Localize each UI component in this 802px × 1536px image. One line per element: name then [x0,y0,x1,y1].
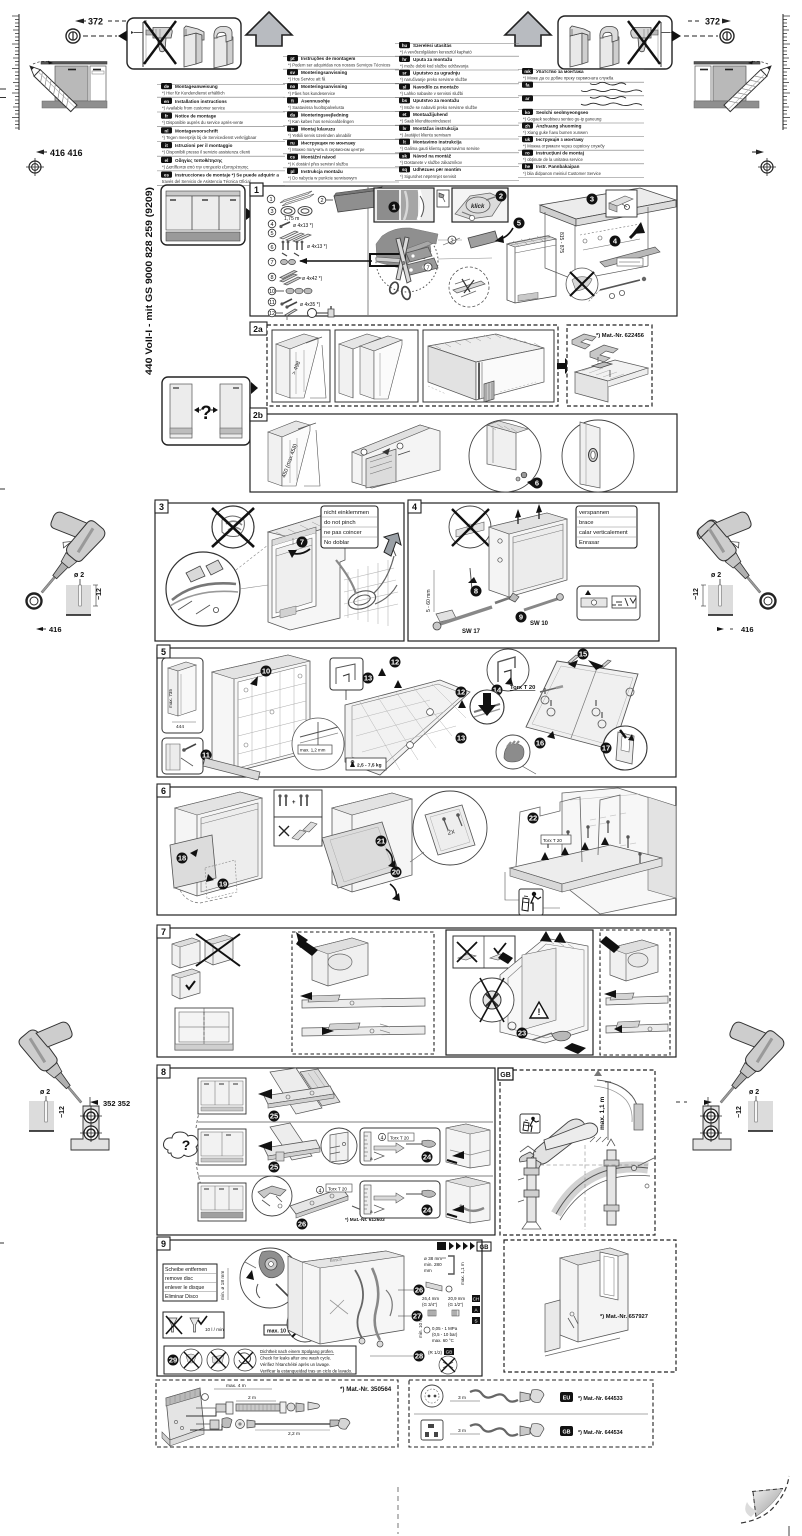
svg-text:Check for leaks after one wash: Check for leaks after one wash cycle. [260,1356,331,1361]
svg-text:Instr. Pannbakaipan: Instr. Pannbakaipan [536,164,580,169]
svg-text:5: 5 [517,219,521,228]
svg-text:Installation instructions: Installation instructions [175,99,227,104]
svg-text:2a: 2a [253,324,263,334]
svg-text:ru: ru [290,141,295,146]
svg-text:10: 10 [269,289,275,295]
svg-text:max. 735: max. 735 [168,689,173,708]
svg-text:ø 2: ø 2 [749,1089,759,1096]
svg-text:calar verticalement: calar verticalement [579,530,628,536]
svg-text:27: 27 [413,1312,421,1321]
svg-text:2: 2 [320,198,323,204]
svg-text:SW 10: SW 10 [530,621,549,627]
svg-text:Enrasar: Enrasar [579,540,599,546]
svg-text:?: ? [200,403,212,424]
svg-text:Інструкція з монтажу: Інструкція з монтажу [536,137,584,142]
svg-text:2,5 - 7,5 kg: 2,5 - 7,5 kg [357,763,382,769]
svg-text:es: es [164,173,169,178]
svg-text:6: 6 [270,245,273,251]
svg-text:Uputstvo za montažu: Uputstvo za montažu [413,98,459,103]
svg-text:Asennusohje: Asennusohje [301,98,330,103]
svg-text:brace: brace [579,520,594,526]
svg-text:26,4 mm: 26,4 mm [422,1296,439,1301]
svg-text:*) obținute de la unitatea ser: *) obținute de la unitatea service [523,157,583,162]
svg-text:24: 24 [423,1206,432,1215]
svg-text:*) Galima gauti klientų aptarn: *) Galima gauti klientų aptarnavimo serv… [400,146,480,151]
svg-text:SW 17: SW 17 [462,629,481,635]
svg-text:*) Kan købes hos serviceafdeli: *) Kan købes hos serviceafdelingen [288,119,355,124]
svg-text:−12: −12 [736,1106,743,1118]
svg-text:Montaj kılavuzu: Montaj kılavuzu [301,127,335,132]
svg-text:GB: GB [500,1072,511,1079]
svg-text:2b: 2b [253,410,263,420]
svg-text:18: 18 [178,854,186,863]
svg-text:+: + [292,800,296,806]
svg-text:2: 2 [499,192,503,201]
svg-text:Torx T 20: Torx T 20 [543,838,562,843]
svg-text:fr: fr [165,114,168,119]
svg-text:a: a [370,1156,373,1161]
svg-text:444: 444 [176,724,184,730]
svg-text:6: 6 [161,786,166,796]
svg-text:*) Yetkili servis üzerinden al: *) Yetkili servis üzerinden alınabilir [288,133,352,138]
svg-text:Οδηγίες τοποθέτησης: Οδηγίες τοποθέτησης [175,158,223,164]
svg-text:sr: sr [402,71,406,76]
svg-text:Montavimo instrukcija: Montavimo instrukcija [413,140,462,145]
svg-text:*) Можно получить в сервисном: *) Можно получить в сервисном центре [288,147,365,152]
svg-text:Torx T 20: Torx T 20 [510,685,535,691]
svg-text:!: ! [538,1007,541,1017]
svg-text:Návod na montáž: Návod na montáž [413,153,452,158]
svg-text:?: ? [182,1137,191,1153]
svg-text:*) Dostanete v službe zákazník: *) Dostanete v službe zákazníkov [400,160,463,165]
svg-text:no: no [290,84,296,89]
svg-text:ne pas coincer: ne pas coincer [324,530,362,536]
svg-text:GB: GB [446,1350,453,1355]
svg-text:*) Xiang guke fuwu bumen xunwe: *) Xiang guke fuwu bumen xunwen [523,130,588,135]
svg-text:(G 3/4"): (G 3/4") [422,1302,438,1307]
svg-text:28: 28 [415,1352,423,1361]
svg-text:3: 3 [270,209,273,215]
svg-text:hu: hu [402,43,408,48]
svg-text:372: 372 [705,17,720,27]
svg-text:10: 10 [262,667,270,676]
svg-text:GB: GB [562,1430,570,1436]
svg-text:*) Може да се добие преку серв: *) Може да се добие преку сервисната слу… [523,76,614,81]
svg-text:372: 372 [88,17,103,27]
svg-text:remove disc: remove disc [165,1276,193,1282]
svg-text:pt: pt [290,56,295,61]
svg-text:*) Podem ser adquiridas nos no: *) Podem ser adquiridas nos nossos Servi… [288,63,390,68]
svg-text:1: 1 [269,197,272,203]
svg-text:*) A vevőszolgálaton keresztül: *) A vevőszolgálaton keresztül kapható [400,50,472,55]
svg-text:max. 60 °C: max. 60 °C [432,1338,454,1343]
svg-text:do not pinch: do not pinch [324,520,356,526]
svg-text:2,2 m: 2,2 m [288,1431,300,1437]
svg-text:26: 26 [298,1220,306,1229]
svg-text:10 l / min: 10 l / min [205,1327,224,1332]
svg-text:Torx T 20: Torx T 20 [390,1136,409,1141]
svg-text:*) Mat.-Nr. 622456: *) Mat.-Nr. 622456 [596,333,645,339]
svg-text:*) Mat.-Nr. 657927: *) Mat.-Nr. 657927 [600,1314,648,1320]
svg-text:0,05 - 1 MPa: 0,05 - 1 MPa [432,1326,458,1331]
svg-text:4: 4 [412,502,417,512]
svg-text:he: he [525,164,531,169]
svg-text:mk: mk [524,69,531,74]
svg-text:20,9 mm: 20,9 mm [448,1296,465,1301]
svg-text:bs: bs [402,98,408,103]
svg-text:Udhëzues për montim: Udhëzues për montim [413,167,461,172]
svg-text:(G 1/2"): (G 1/2") [448,1302,464,1307]
svg-text:Szerelési utasítás: Szerelési utasítás [413,43,452,48]
svg-text:416 416: 416 416 [50,148,83,158]
svg-text:Notice de montage: Notice de montage [175,114,217,119]
svg-text:Monteringsanvisning: Monteringsanvisning [301,84,347,89]
svg-text:*) Do nabycia w punkcie serwis: *) Do nabycia w punkcie serwisowym [288,175,357,180]
svg-text:Инструкция по монтажу: Инструкция по монтажу [301,141,356,146]
svg-text:enlever le disque: enlever le disque [165,1285,204,1291]
svg-text:da: da [290,112,296,117]
svg-text:min. ø 18 mm: min. ø 18 mm [220,1271,226,1300]
svg-text:en: en [164,99,169,104]
svg-text:ø 4x35 *): ø 4x35 *) [300,302,321,308]
svg-text:6: 6 [535,479,539,488]
svg-text:sv: sv [290,70,295,75]
svg-text:Montaažijuhend: Montaažijuhend [413,112,448,117]
svg-text:*) Disponibili presso il servi: *) Disponibili presso il servizio assist… [162,150,250,155]
svg-text:ø 2: ø 2 [40,1089,50,1096]
svg-text:2 m: 2 m [248,1395,256,1401]
svg-text:max. 1,2 mm: max. 1,2 mm [300,748,326,753]
svg-text:21: 21 [377,837,385,846]
svg-text:24: 24 [423,1153,432,1162]
svg-text:7: 7 [270,260,273,266]
svg-text:*) Available from customer ser: *) Available from customer service [162,105,226,110]
svg-text:et: et [403,112,407,117]
svg-text:Istruzioni per il montaggio: Istruzioni per il montaggio [175,143,233,148]
svg-text:nicht einklemmen: nicht einklemmen [324,510,369,516]
svg-text:Montāžas instrukcija: Montāžas instrukcija [413,126,459,131]
svg-text:17: 17 [602,744,610,753]
svg-text:Uputstvo za ugradnju: Uputstvo za ugradnju [413,71,460,76]
svg-text:Monteringsvejledning: Monteringsvejledning [301,112,349,117]
svg-text:ø 4x13 *): ø 4x13 *) [293,223,314,229]
svg-text:*) Hier für Kundendienst erhäl: *) Hier für Kundendienst erhältlich [162,91,225,96]
svg-text:*) Можна отримати через сервіс: *) Можна отримати через сервісну службу [523,144,606,149]
svg-text:S: S [474,1319,477,1324]
svg-text:(0,5 - 10 bar): (0,5 - 10 bar) [432,1332,458,1337]
svg-text:*) Tegen meerprijs bij de Serv: *) Tegen meerprijs bij de Servicedienst … [162,135,257,140]
svg-text:Montageanweisung: Montageanweisung [175,84,218,89]
svg-text:Torx T 20: Torx T 20 [328,1187,347,1192]
svg-text:(R 1/2): (R 1/2) [428,1350,443,1355]
svg-text:Montagevoorschrift: Montagevoorschrift [175,128,218,133]
svg-text:lv: lv [403,126,407,131]
svg-text:3 m: 3 m [458,1428,466,1434]
svg-text:26: 26 [415,1286,423,1295]
svg-text:fa: fa [526,83,530,88]
svg-text:9: 9 [161,1239,166,1249]
svg-text:*) Mat.-Nr. 644534: *) Mat.-Nr. 644534 [578,1430,623,1436]
svg-text:Scheibe entfernen: Scheibe entfernen [165,1267,207,1273]
svg-text:Instrucțiuni de montaj: Instrucțiuni de montaj [536,151,584,157]
svg-text:Verificar la estanqueidad tras: Verificar la estanqueidad tras un ciclo … [260,1369,352,1374]
svg-text:1,75 m: 1,75 m [284,216,299,222]
svg-text:*) Fåes hos kundeservice: *) Fåes hos kundeservice [288,91,336,96]
svg-text:mm: mm [424,1268,432,1273]
svg-text:*) naručivanje preko servisne: *) naručivanje preko servisne službe [400,77,468,82]
svg-text:815 - 875: 815 - 875 [558,232,564,253]
svg-text:3: 3 [159,502,164,512]
svg-text:ø 4x13 *): ø 4x13 *) [307,244,328,250]
svg-text:a: a [370,1209,373,1214]
svg-text:1: 1 [254,185,259,195]
svg-text:5: 5 [270,231,273,237]
svg-text:352 352: 352 352 [103,1099,130,1108]
svg-text:*) Saatavissa huoltopalvelusta: *) Saatavissa huoltopalvelusta [288,105,345,110]
svg-text:4: 4 [270,222,273,228]
svg-text:416: 416 [741,625,754,634]
svg-text:*) Disponible auprès du servic: *) Disponible auprès du service après-ve… [162,120,244,125]
svg-text:ø 4x42 *): ø 4x42 *) [302,276,323,282]
svg-text:min. 280: min. 280 [424,1262,442,1267]
svg-text:de: de [164,84,170,89]
svg-text:través del Servicio de Asisten: través del Servicio de Asistencia Técnic… [162,179,251,184]
svg-text:tr: tr [291,127,294,132]
svg-text:sq: sq [402,167,407,172]
svg-text:GB: GB [480,1245,490,1251]
svg-text:Упатство за монтажа: Упатство за монтажа [536,69,584,74]
svg-text:*) Saab klienditeenindusest: *) Saab klienditeenindusest [400,119,452,124]
svg-text:440 Voll-I - mit GS 9000 82: 440 Voll-I - mit GS 9000 828 259 (9209) [144,187,154,375]
svg-text:verspannen: verspannen [579,510,609,516]
svg-text:8: 8 [270,275,273,281]
svg-text:25: 25 [270,1112,278,1121]
svg-text:Dichtheit nach einem Spülgang: Dichtheit nach einem Spülgang prüfen. [260,1349,334,1354]
svg-text:ko: ko [525,110,530,115]
svg-text:el: el [165,158,169,163]
svg-text:*) Hos Service att få: *) Hos Service att få [288,77,326,82]
svg-text:CH: CH [473,1297,480,1302]
svg-text:7: 7 [161,927,166,937]
svg-text:Seolchi seolmyeongseo: Seolchi seolmyeongseo [536,110,589,115]
svg-text:20: 20 [392,868,400,877]
svg-text:hr: hr [402,57,407,62]
svg-text:Instruções de montagem: Instruções de montagem [301,56,355,61]
svg-text:Monteringsanvisning: Monteringsanvisning [301,70,347,75]
svg-text:ø 2: ø 2 [711,572,721,579]
svg-text:19: 19 [219,880,227,889]
svg-text:Uputa za montažu: Uputa za montažu [413,57,452,62]
svg-text:Montážní návod: Montážní návod [301,155,336,160]
svg-text:Navodilo za montažo: Navodilo za montažo [413,84,459,89]
svg-text:*) Mat.-Nr. 350564: *) Mat.-Nr. 350564 [340,1386,392,1393]
svg-text:29: 29 [169,1356,177,1365]
svg-text:ø 38 mm: ø 38 mm [424,1256,442,1261]
svg-text:zh: zh [525,123,530,128]
svg-text:fi: fi [291,98,294,103]
svg-text:Instrukcja montażu: Instrukcja montażu [301,169,343,174]
svg-text:sk: sk [402,153,407,158]
svg-text:15: 15 [579,650,587,659]
svg-text:EU: EU [563,1396,571,1402]
svg-text:12: 12 [269,311,275,317]
svg-text:23: 23 [518,1029,526,1038]
svg-text:4: 4 [319,1189,322,1195]
svg-text:*) Jautājiet klientu servisam: *) Jautājiet klientu servisam [400,132,451,137]
svg-text:ro: ro [525,151,530,156]
svg-text:cs: cs [290,155,295,160]
svg-text:11: 11 [269,300,275,306]
svg-text:−12: −12 [693,588,700,600]
svg-text:7: 7 [426,266,429,272]
svg-text:*) Gogaek seobiseu senteo gu-i: *) Gogaek seobiseu senteo gu-ip ganeung [523,116,602,121]
svg-text:sl: sl [403,84,407,89]
svg-text:25: 25 [270,1163,278,1172]
svg-text:4: 4 [381,1136,384,1142]
svg-text:3: 3 [590,195,594,204]
svg-text:22: 22 [529,814,537,823]
svg-text:7: 7 [300,538,304,547]
svg-text:416: 416 [49,625,62,634]
svg-text:−12: −12 [59,1106,66,1118]
svg-text:Instrucciones de montaje *): Instrucciones de montaje *) Se puede adq… [175,173,279,178]
svg-text:max. 1,1 m: max. 1,1 m [599,1097,606,1130]
svg-text:1: 1 [392,203,396,212]
svg-text:13: 13 [364,674,372,683]
svg-text:*) Mat.-Nr. 644533: *) Mat.-Nr. 644533 [578,1396,623,1402]
svg-text:−12: −12 [96,588,103,600]
svg-text:9: 9 [519,613,523,622]
svg-text:3 m: 3 m [458,1395,466,1401]
svg-text:ø 2: ø 2 [74,572,84,579]
svg-text:ar: ar [525,96,529,101]
svg-text:16: 16 [536,739,544,748]
svg-text:*) Διατίθενται από την υπηρεσί: *) Διατίθενται από την υπηρεσία εξυπηρέτ… [162,164,248,169]
svg-text:12: 12 [457,688,465,697]
svg-text:Eliminar Disco: Eliminar Disco [165,1294,198,1300]
svg-text:uk: uk [525,137,531,142]
svg-text:max. 4 m: max. 4 m [226,1383,246,1389]
svg-text:Vérifiez l'étanchéité après un: Vérifiez l'étanchéité après un lavage. [260,1362,330,1367]
svg-text:No doblar: No doblar [324,540,349,546]
svg-text:5: 5 [161,647,166,657]
svg-text:nl: nl [165,128,169,133]
svg-text:Anzhuang shuoming: Anzhuang shuoming [536,123,582,128]
svg-text:*) Sigurohet nëpërmjet servisi: *) Sigurohet nëpërmjet servisit [400,174,457,179]
svg-text:8: 8 [161,1067,166,1077]
svg-text:*) može dobiti kod službe održ: *) može dobiti kod službe održavanja [400,63,469,68]
svg-text:8: 8 [474,587,478,596]
svg-text:*) Lahko nabavite v servisni s: *) Lahko nabavite v servisni službi [400,91,463,96]
svg-text:klick: klick [471,204,485,210]
svg-text:pl: pl [291,169,295,174]
svg-text:12: 12 [391,658,399,667]
svg-text:*) Može se nabaviti preko serv: *) Može se nabaviti preko servisne služb… [400,105,478,110]
svg-text:5 - 60 mm: 5 - 60 mm [426,589,432,612]
svg-text:13: 13 [457,734,465,743]
svg-text:*) blia didpanon meiniul Cust: *) blia didpanon meiniul Customer Servic… [523,171,602,176]
svg-text:max. 1,1 m: max. 1,1 m [460,1262,465,1285]
svg-text:*) K dostání přes servisní slu: *) K dostání přes servisní službu [288,161,349,166]
